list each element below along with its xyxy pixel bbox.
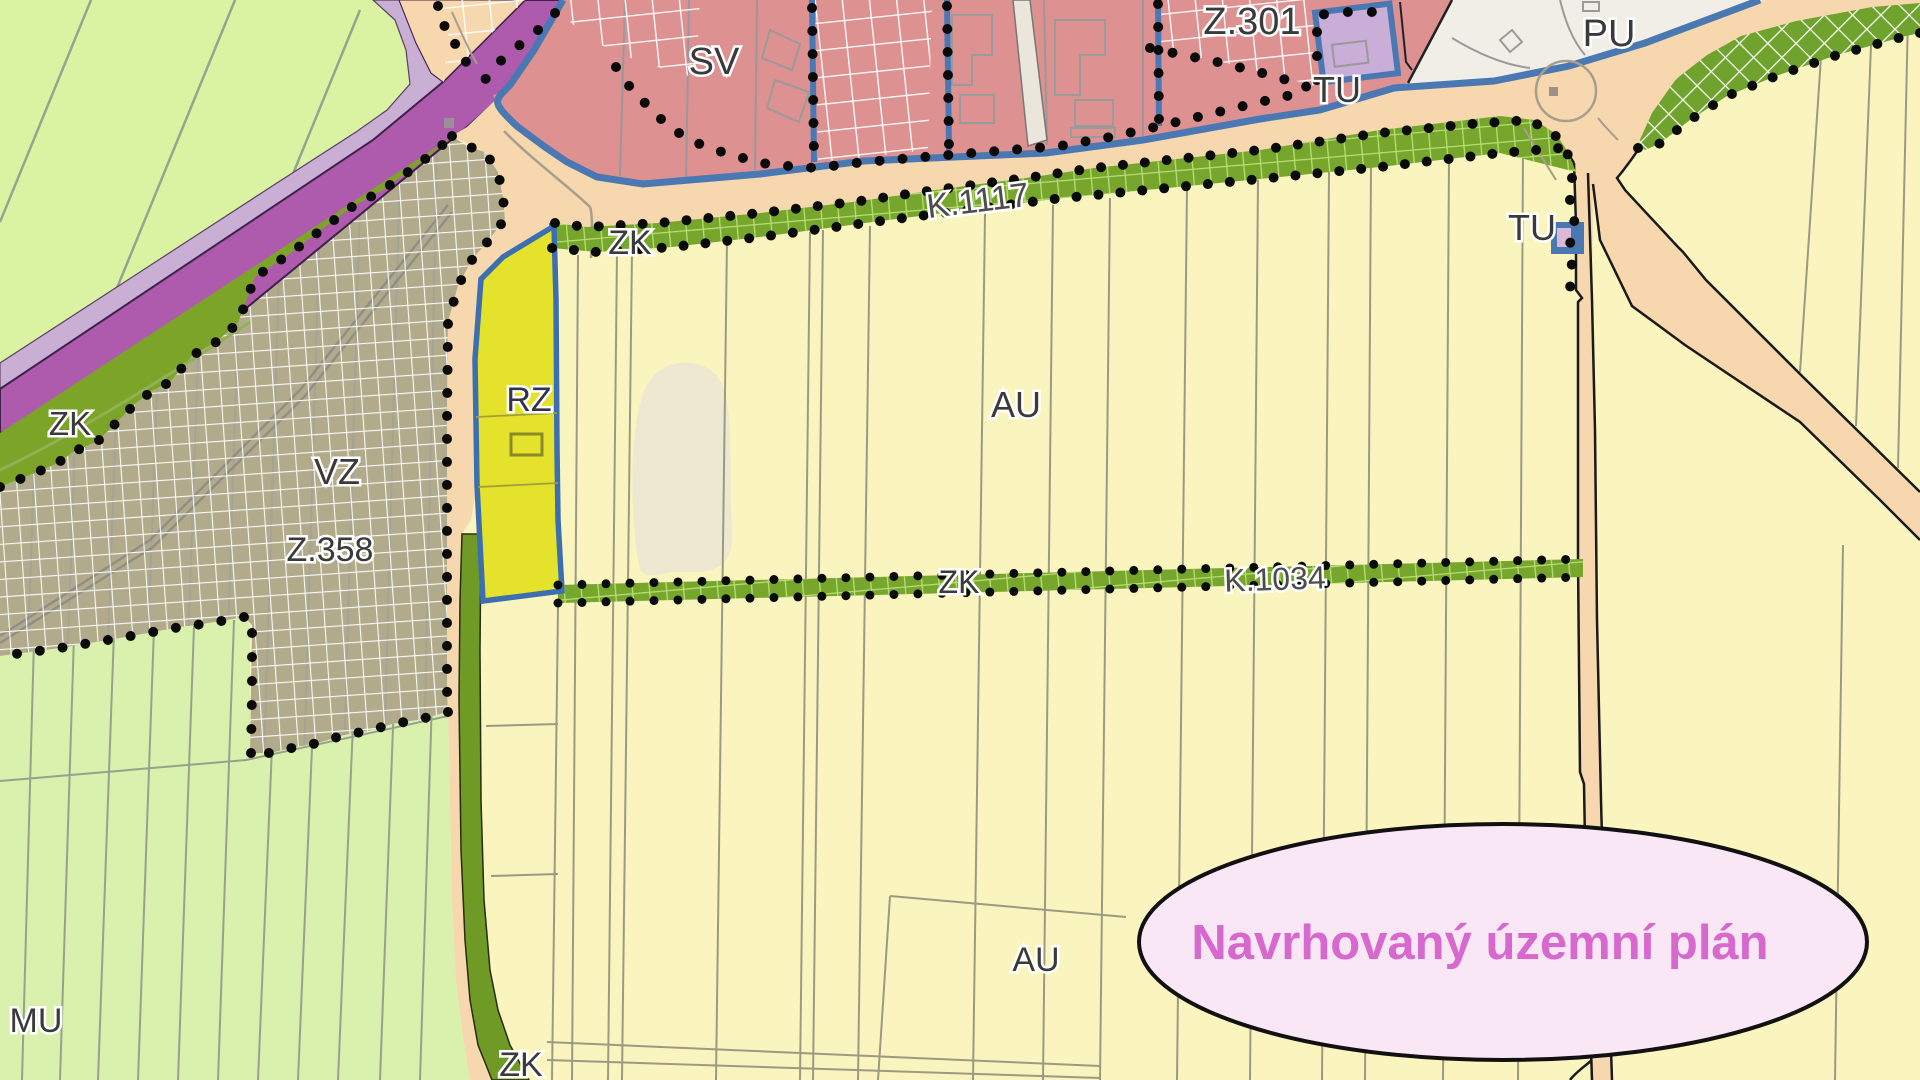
svg-text:K.1034: K.1034 (1224, 559, 1327, 599)
svg-text:ZK: ZK (939, 564, 980, 600)
svg-text:MU: MU (10, 1002, 63, 1040)
svg-text:ZK: ZK (608, 224, 652, 262)
svg-text:SV: SV (689, 41, 740, 83)
svg-text:VZ: VZ (314, 451, 360, 492)
svg-text:Navrhovaný územní plán: Navrhovaný územní plán (1191, 916, 1768, 970)
svg-text:TU: TU (1313, 69, 1361, 110)
svg-text:ZK: ZK (499, 1046, 543, 1080)
svg-text:PU: PU (1583, 13, 1636, 55)
svg-text:RZ: RZ (506, 381, 551, 419)
svg-text:Z.358: Z.358 (287, 531, 374, 569)
svg-text:ZK: ZK (49, 405, 91, 442)
svg-text:Z.301: Z.301 (1203, 1, 1300, 43)
svg-text:AU: AU (1012, 941, 1059, 979)
svg-text:AU: AU (991, 384, 1041, 425)
svg-text:TU: TU (1508, 207, 1556, 248)
